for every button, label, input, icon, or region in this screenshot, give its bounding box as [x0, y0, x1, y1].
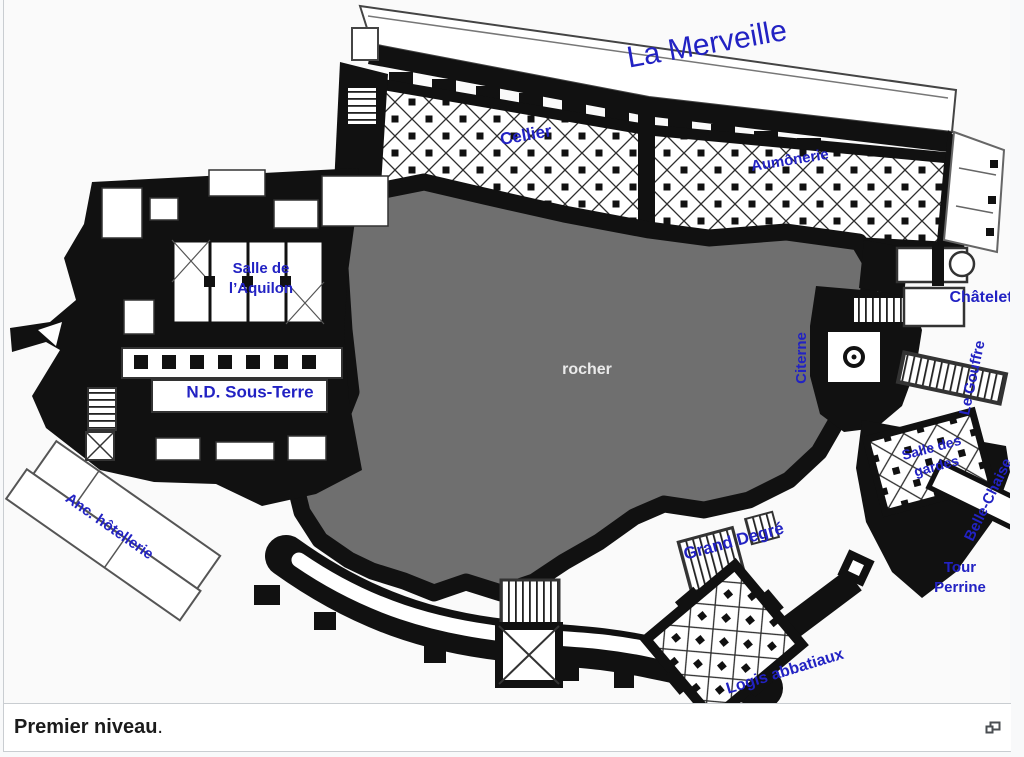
salle-aquilon-hall: [172, 240, 324, 324]
floor-plan-svg: [4, 0, 1010, 703]
caption-title: Premier niveau: [14, 716, 157, 738]
rocher-rock-area: [294, 182, 872, 593]
floorplan-image[interactable]: La MerveilleCellierAumônerieSalle del’Aq…: [4, 0, 1010, 703]
wiki-thumbnail-frame: La MerveilleCellierAumônerieSalle del’Aq…: [3, 0, 1010, 752]
caption-suffix: .: [157, 716, 163, 738]
enlarge-icon[interactable]: [985, 721, 1001, 734]
caption-bar: Premier niveau.: [4, 703, 1011, 752]
caption-text: Premier niveau.: [14, 716, 163, 739]
